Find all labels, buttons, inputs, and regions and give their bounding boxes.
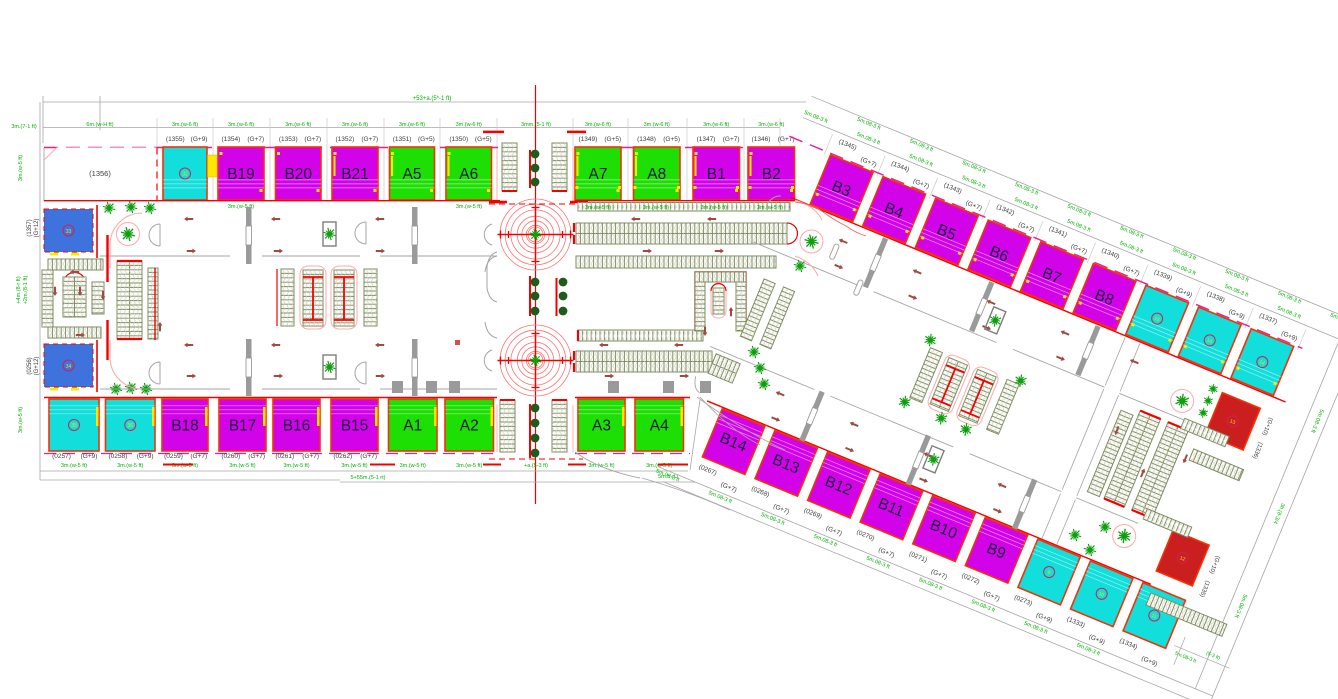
svg-text:3m.(w-5 ft): 3m.(w-5 ft) [757, 205, 783, 211]
svg-text:(1357): (1357) [27, 219, 33, 236]
svg-text:A4: A4 [650, 418, 669, 435]
svg-text:3m.(w-6 ft): 3m.(w-6 ft) [456, 122, 482, 128]
svg-text:A2: A2 [460, 418, 479, 435]
svg-text:B19: B19 [227, 166, 255, 183]
svg-text:B17: B17 [229, 418, 257, 435]
svg-text:3m.(w-5 ft): 3m.(w-5 ft) [643, 205, 669, 211]
svg-text:(0258): (0258) [108, 453, 127, 460]
svg-text:(1355): (1355) [166, 136, 185, 143]
svg-text:(G+5): (G+5) [418, 136, 435, 143]
svg-text:(G+9): (G+9) [191, 136, 208, 143]
svg-text:(0262): (0262) [333, 453, 352, 460]
svg-text:3m.(w-5 ft): 3m.(w-5 ft) [585, 205, 611, 211]
svg-text:3m.(w-5 ft): 3m.(w-5 ft) [283, 463, 309, 469]
svg-text:34: 34 [66, 364, 72, 370]
svg-text:3m.(w-6 ft): 3m.(w-6 ft) [703, 122, 729, 128]
svg-text:3m.(w-5 ft): 3m.(w-5 ft) [341, 463, 367, 469]
svg-text:3m.(w-5 ft): 3m.(w-5 ft) [588, 463, 614, 469]
svg-text:(G+12): (G+12) [34, 219, 40, 238]
svg-text:(0259): (0259) [164, 453, 183, 460]
svg-text:3m.(w-5 ft): 3m.(w-5 ft) [117, 463, 143, 469]
svg-text:(G+5): (G+5) [663, 136, 680, 143]
svg-text:A7: A7 [589, 166, 608, 183]
svg-text:(G+7): (G+7) [248, 453, 265, 460]
svg-text:3m.(w-5 ft): 3m.(w-5 ft) [18, 407, 24, 433]
svg-text:(0261): (0261) [275, 453, 294, 460]
svg-text:(G+7): (G+7) [302, 453, 319, 460]
svg-text:36: 36 [127, 423, 133, 429]
svg-text:A1: A1 [403, 418, 422, 435]
svg-text:A3: A3 [592, 418, 611, 435]
svg-text:3m.(w-6 ft): 3m.(w-6 ft) [644, 122, 670, 128]
svg-text:(1354): (1354) [221, 136, 240, 143]
svg-text:A6: A6 [459, 166, 478, 183]
svg-text:3m.(w-5 ft): 3m.(w-5 ft) [456, 204, 482, 210]
svg-text:(0257): (0257) [52, 453, 71, 460]
svg-text:(G+5): (G+5) [604, 136, 621, 143]
svg-text:B16: B16 [283, 418, 311, 435]
svg-text:3m.(w-6 ft): 3m.(w-6 ft) [342, 122, 368, 128]
svg-text:B18: B18 [171, 418, 199, 435]
svg-text:(1353): (1353) [279, 136, 298, 143]
svg-text:A8: A8 [647, 166, 666, 183]
svg-text:B21: B21 [341, 166, 369, 183]
svg-text:3m.(7-1 ft): 3m.(7-1 ft) [11, 124, 37, 130]
svg-text:+4m.(8-r ft): +4m.(8-r ft) [16, 276, 22, 304]
svg-text:B15: B15 [341, 418, 369, 435]
svg-text:35: 35 [71, 423, 77, 429]
svg-text:(1348): (1348) [637, 136, 656, 143]
svg-text:(G+7): (G+7) [190, 453, 207, 460]
svg-text:+a.(5-3 ft): +a.(5-3 ft) [524, 463, 548, 469]
svg-text:32: 32 [182, 172, 188, 178]
svg-text:(1350): (1350) [449, 136, 468, 143]
svg-text:(1346): (1346) [752, 136, 771, 143]
svg-text:3m.(w-6 ft): 3m.(w-6 ft) [228, 122, 254, 128]
svg-text:3m.(w-5 ft): 3m.(w-5 ft) [400, 463, 426, 469]
svg-text:3m.(w-6 ft): 3m.(w-6 ft) [399, 122, 425, 128]
svg-text:3m.(w-5 ft): 3m.(w-5 ft) [18, 155, 24, 181]
svg-text:(G+7): (G+7) [723, 136, 740, 143]
svg-text:3m.(w-6 ft): 3m.(w-6 ft) [172, 122, 198, 128]
svg-text:3m.(w-6 ft): 3m.(w-6 ft) [285, 122, 311, 128]
svg-text:(1356): (1356) [89, 169, 111, 178]
svg-text:(G+7): (G+7) [361, 136, 378, 143]
svg-text:B2: B2 [762, 166, 781, 183]
svg-text:3m.(w-5 ft): 3m.(w-5 ft) [61, 463, 87, 469]
svg-text:(0256): (0256) [27, 357, 33, 374]
svg-text:(G+12): (G+12) [34, 357, 40, 376]
svg-text:B1: B1 [707, 166, 726, 183]
svg-text:(G+7): (G+7) [360, 453, 377, 460]
svg-text:6m.(w-H ft): 6m.(w-H ft) [86, 122, 113, 128]
svg-text:(G+7): (G+7) [247, 136, 264, 143]
svg-text:(0260): (0260) [221, 453, 240, 460]
svg-text:3m.(w-5 ft): 3m.(w-5 ft) [229, 463, 255, 469]
svg-text:(1351): (1351) [393, 136, 412, 143]
svg-text:(1347): (1347) [697, 136, 716, 143]
svg-text:(G+7): (G+7) [304, 136, 321, 143]
svg-text:+53+a.(5*-1 ft): +53+a.(5*-1 ft) [413, 96, 452, 102]
svg-text:(G+9): (G+9) [81, 453, 98, 460]
svg-text:5+55m.(5-1 rt): 5+55m.(5-1 rt) [351, 475, 386, 481]
svg-text:3m.(w-6 ft): 3m.(w-6 ft) [758, 122, 784, 128]
svg-text:(G+5): (G+5) [475, 136, 492, 143]
svg-text:3m.(w-5 ft): 3m.(w-5 ft) [701, 205, 727, 211]
svg-text:3m.(w-6 ft): 3m.(w-6 ft) [585, 122, 611, 128]
svg-text:A5: A5 [403, 166, 422, 183]
svg-text:(1352): (1352) [335, 136, 354, 143]
svg-text:33: 33 [66, 229, 72, 235]
svg-text:3m.(w-5 ft): 3m.(w-5 ft) [456, 463, 482, 469]
svg-text:(G+9): (G+9) [137, 453, 154, 460]
svg-text:+2m.(8-1 ft): +2m.(8-1 ft) [23, 276, 29, 305]
svg-text:(1349): (1349) [578, 136, 597, 143]
svg-text:B20: B20 [284, 166, 312, 183]
